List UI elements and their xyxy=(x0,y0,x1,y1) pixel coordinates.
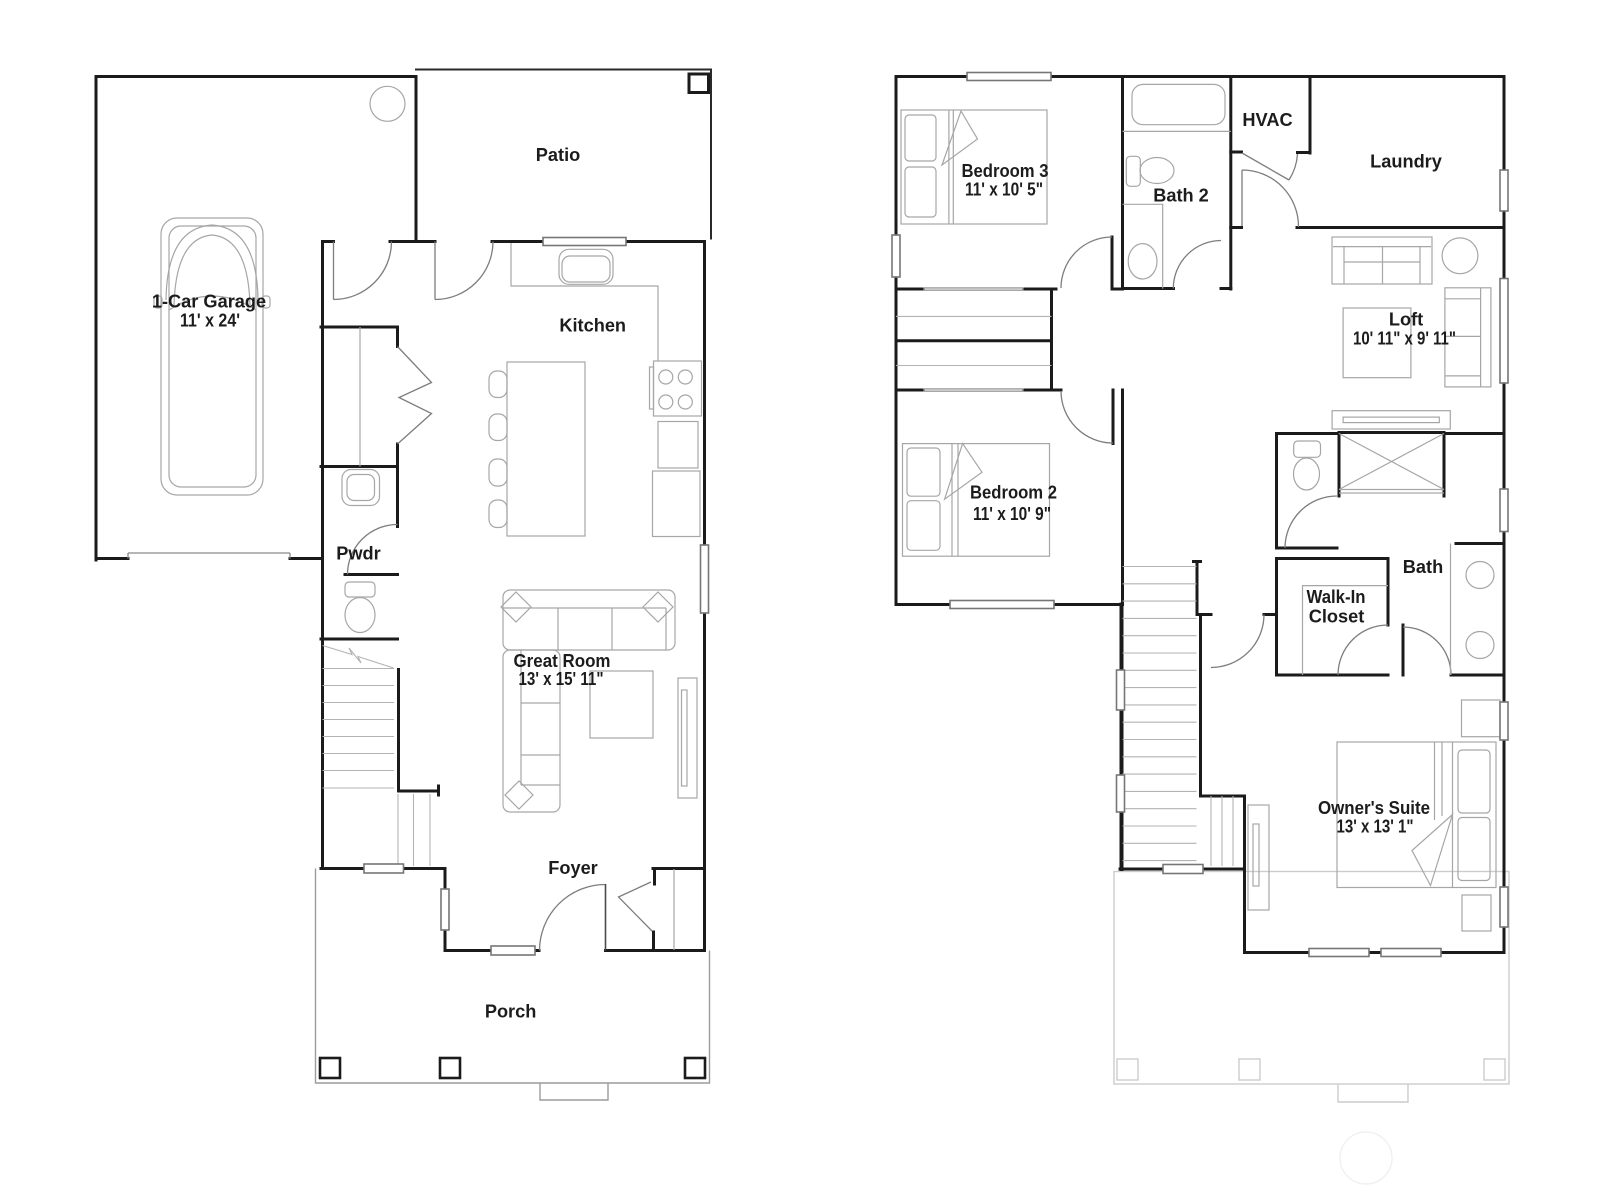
svg-text:Walk-In: Walk-In xyxy=(1307,587,1366,607)
svg-text:Pwdr: Pwdr xyxy=(336,544,380,564)
svg-text:Bedroom 2: Bedroom 2 xyxy=(970,483,1057,503)
svg-text:Patio: Patio xyxy=(536,145,580,165)
svg-text:Bedroom 3: Bedroom 3 xyxy=(962,161,1049,181)
svg-text:11' x 10' 5": 11' x 10' 5" xyxy=(965,180,1043,200)
svg-text:1-Car Garage: 1-Car Garage xyxy=(152,292,266,312)
svg-text:13' x 13' 1": 13' x 13' 1" xyxy=(1337,817,1414,837)
svg-text:HVAC: HVAC xyxy=(1242,110,1292,130)
svg-text:10' 11" x 9' 11": 10' 11" x 9' 11" xyxy=(1353,329,1456,349)
svg-text:Kitchen: Kitchen xyxy=(559,316,626,336)
svg-text:Bath 2: Bath 2 xyxy=(1153,185,1209,205)
svg-text:11' x 24': 11' x 24' xyxy=(180,311,240,331)
svg-text:13' x 15' 11": 13' x 15' 11" xyxy=(519,669,604,689)
svg-text:11' x 10' 9": 11' x 10' 9" xyxy=(973,504,1051,524)
svg-text:Owner's Suite: Owner's Suite xyxy=(1318,798,1430,818)
svg-text:Porch: Porch xyxy=(485,1002,537,1022)
svg-text:Foyer: Foyer xyxy=(548,858,598,878)
svg-text:Closet: Closet xyxy=(1309,606,1365,626)
svg-text:Great Room: Great Room xyxy=(514,651,611,671)
svg-text:Loft: Loft xyxy=(1389,309,1423,329)
svg-text:Bath: Bath xyxy=(1403,557,1443,577)
svg-text:Laundry: Laundry xyxy=(1370,152,1443,172)
